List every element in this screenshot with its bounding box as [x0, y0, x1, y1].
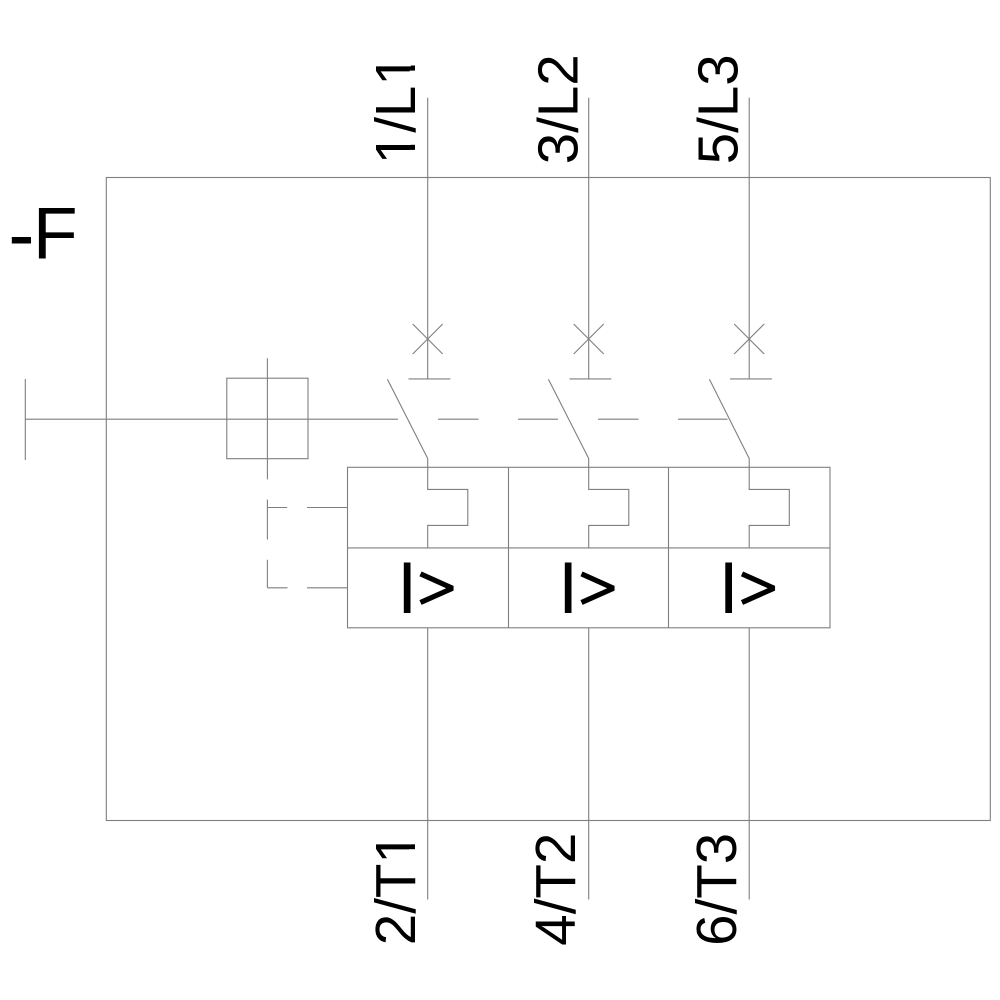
- svg-text:5/L3: 5/L3: [686, 54, 749, 164]
- svg-text:4/T2: 4/T2: [524, 833, 587, 946]
- svg-text:6/T3: 6/T3: [685, 833, 748, 946]
- svg-text:3/L2: 3/L2: [526, 54, 589, 164]
- svg-text:2/T1: 2/T1: [364, 832, 427, 945]
- svg-text:F: F: [33, 193, 78, 275]
- svg-text:1/L1: 1/L1: [364, 54, 427, 164]
